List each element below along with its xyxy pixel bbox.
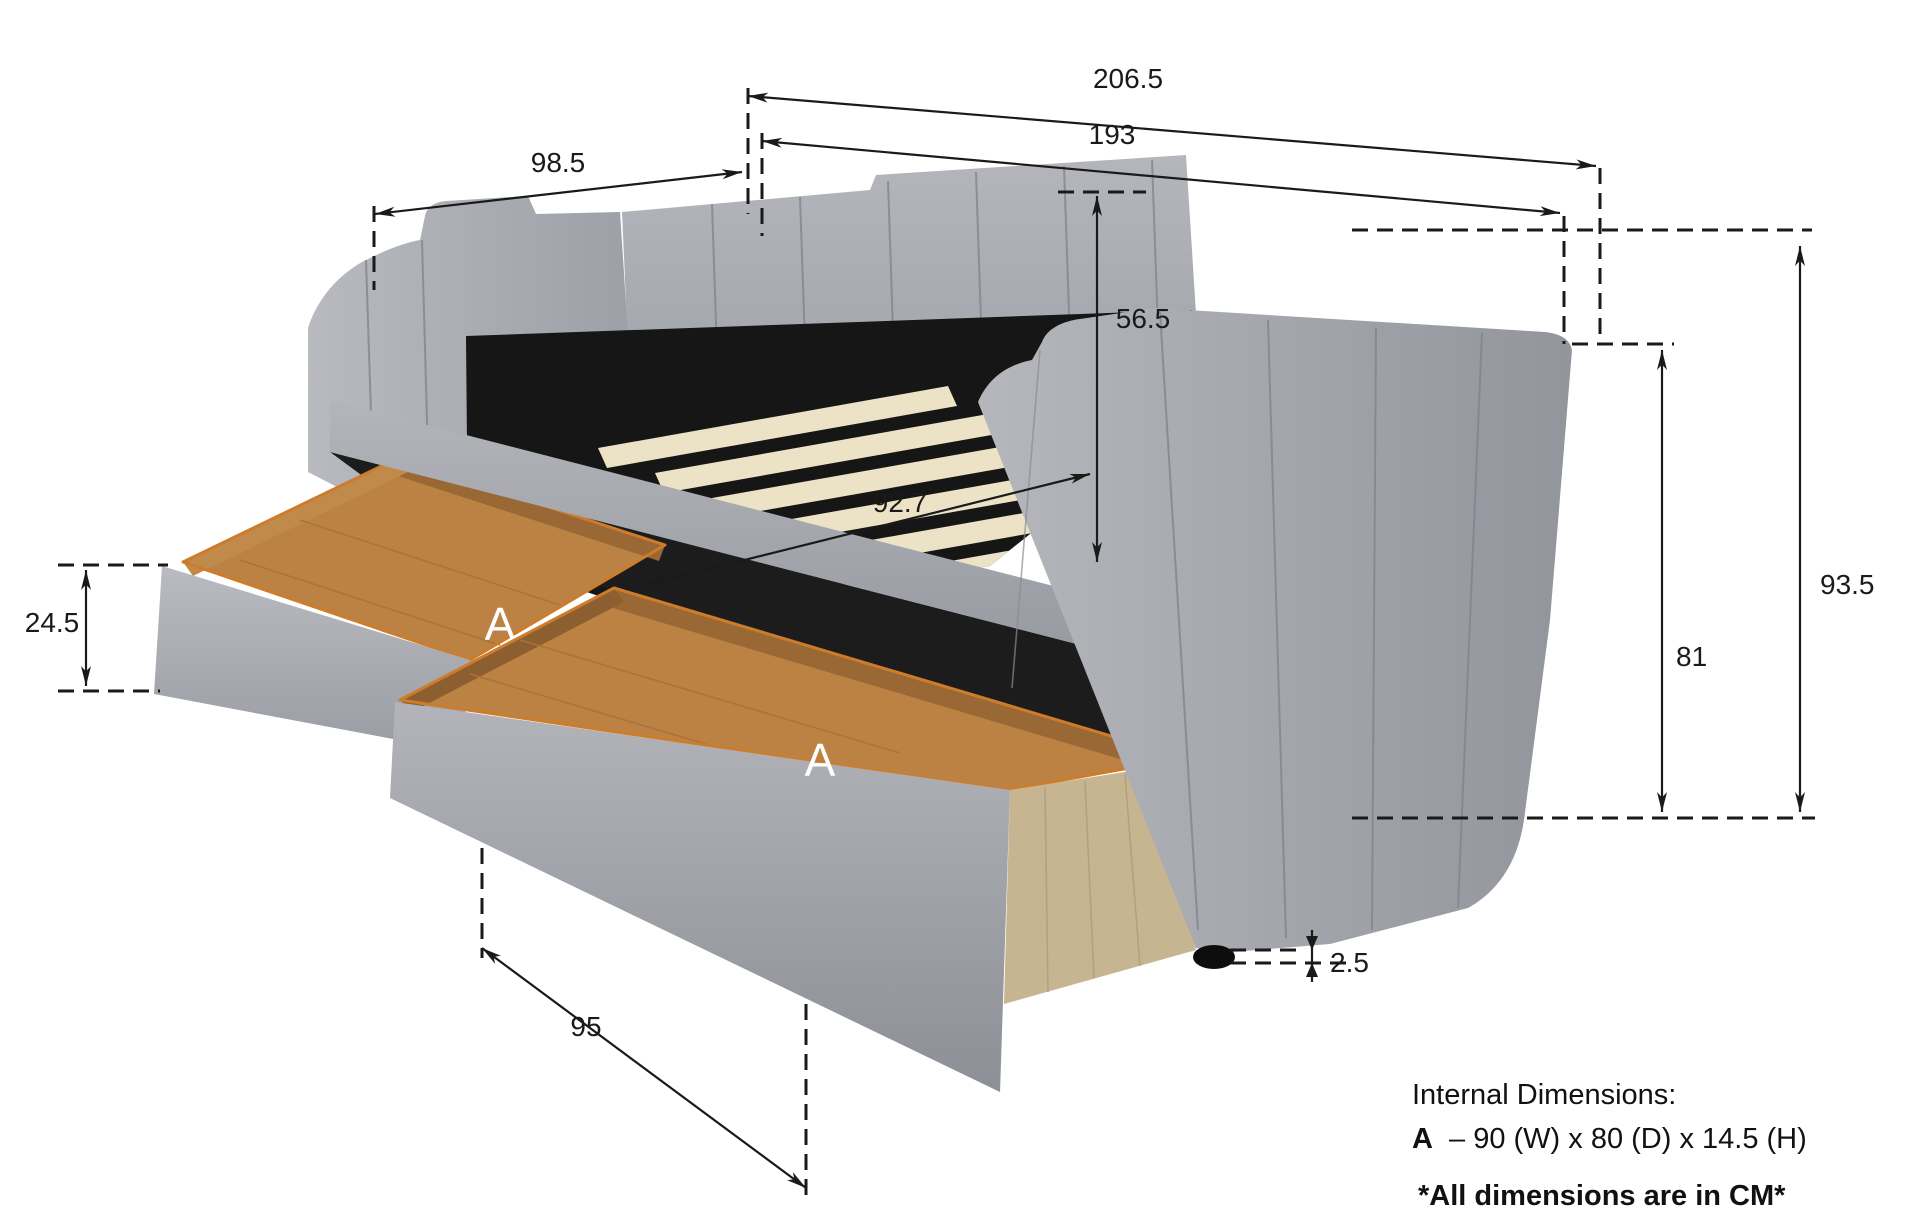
- dim-foot-height-label: 2.5: [1330, 947, 1369, 978]
- dim-overall-height-label: 93.5: [1820, 569, 1875, 600]
- note-units: *All dimensions are in CM*: [1418, 1180, 1786, 1212]
- dim-backrest-height-label: 56.5: [1116, 303, 1171, 334]
- dim-drawer-height-label: 24.5: [25, 607, 80, 638]
- dim-inner-length-label: 193: [1089, 119, 1136, 150]
- dim-arm-height-label: 81: [1676, 641, 1707, 672]
- internal-dimensions-note: Internal Dimensions: A – 90 (W) x 80 (D)…: [1412, 1079, 1807, 1212]
- note-item-value: – 90 (W) x 80 (D) x 14.5 (H): [1449, 1123, 1807, 1155]
- dim-drawer-height: 24.5: [25, 565, 168, 691]
- bed-foot: [1193, 945, 1235, 969]
- drawer-2-label: A: [805, 734, 836, 786]
- arrowhead: [1306, 963, 1318, 977]
- diagram-canvas: A A 206.5: [0, 0, 1920, 1230]
- dim-arm-height: 81: [1572, 344, 1707, 812]
- dim-slat-width-label: 92.7: [873, 487, 928, 518]
- dim-drawer-length-label: 95: [570, 1011, 601, 1042]
- daybed-dimension-diagram: A A 206.5: [0, 0, 1920, 1230]
- note-item-label: A: [1412, 1123, 1433, 1155]
- dim-overall-length-label: 206.5: [1093, 63, 1163, 94]
- dimension-line: [482, 948, 806, 1188]
- note-item: A – 90 (W) x 80 (D) x 14.5 (H): [1412, 1123, 1807, 1155]
- note-title: Internal Dimensions:: [1412, 1079, 1676, 1111]
- dimension-line: [748, 96, 1596, 166]
- dim-depth-label: 98.5: [531, 147, 586, 178]
